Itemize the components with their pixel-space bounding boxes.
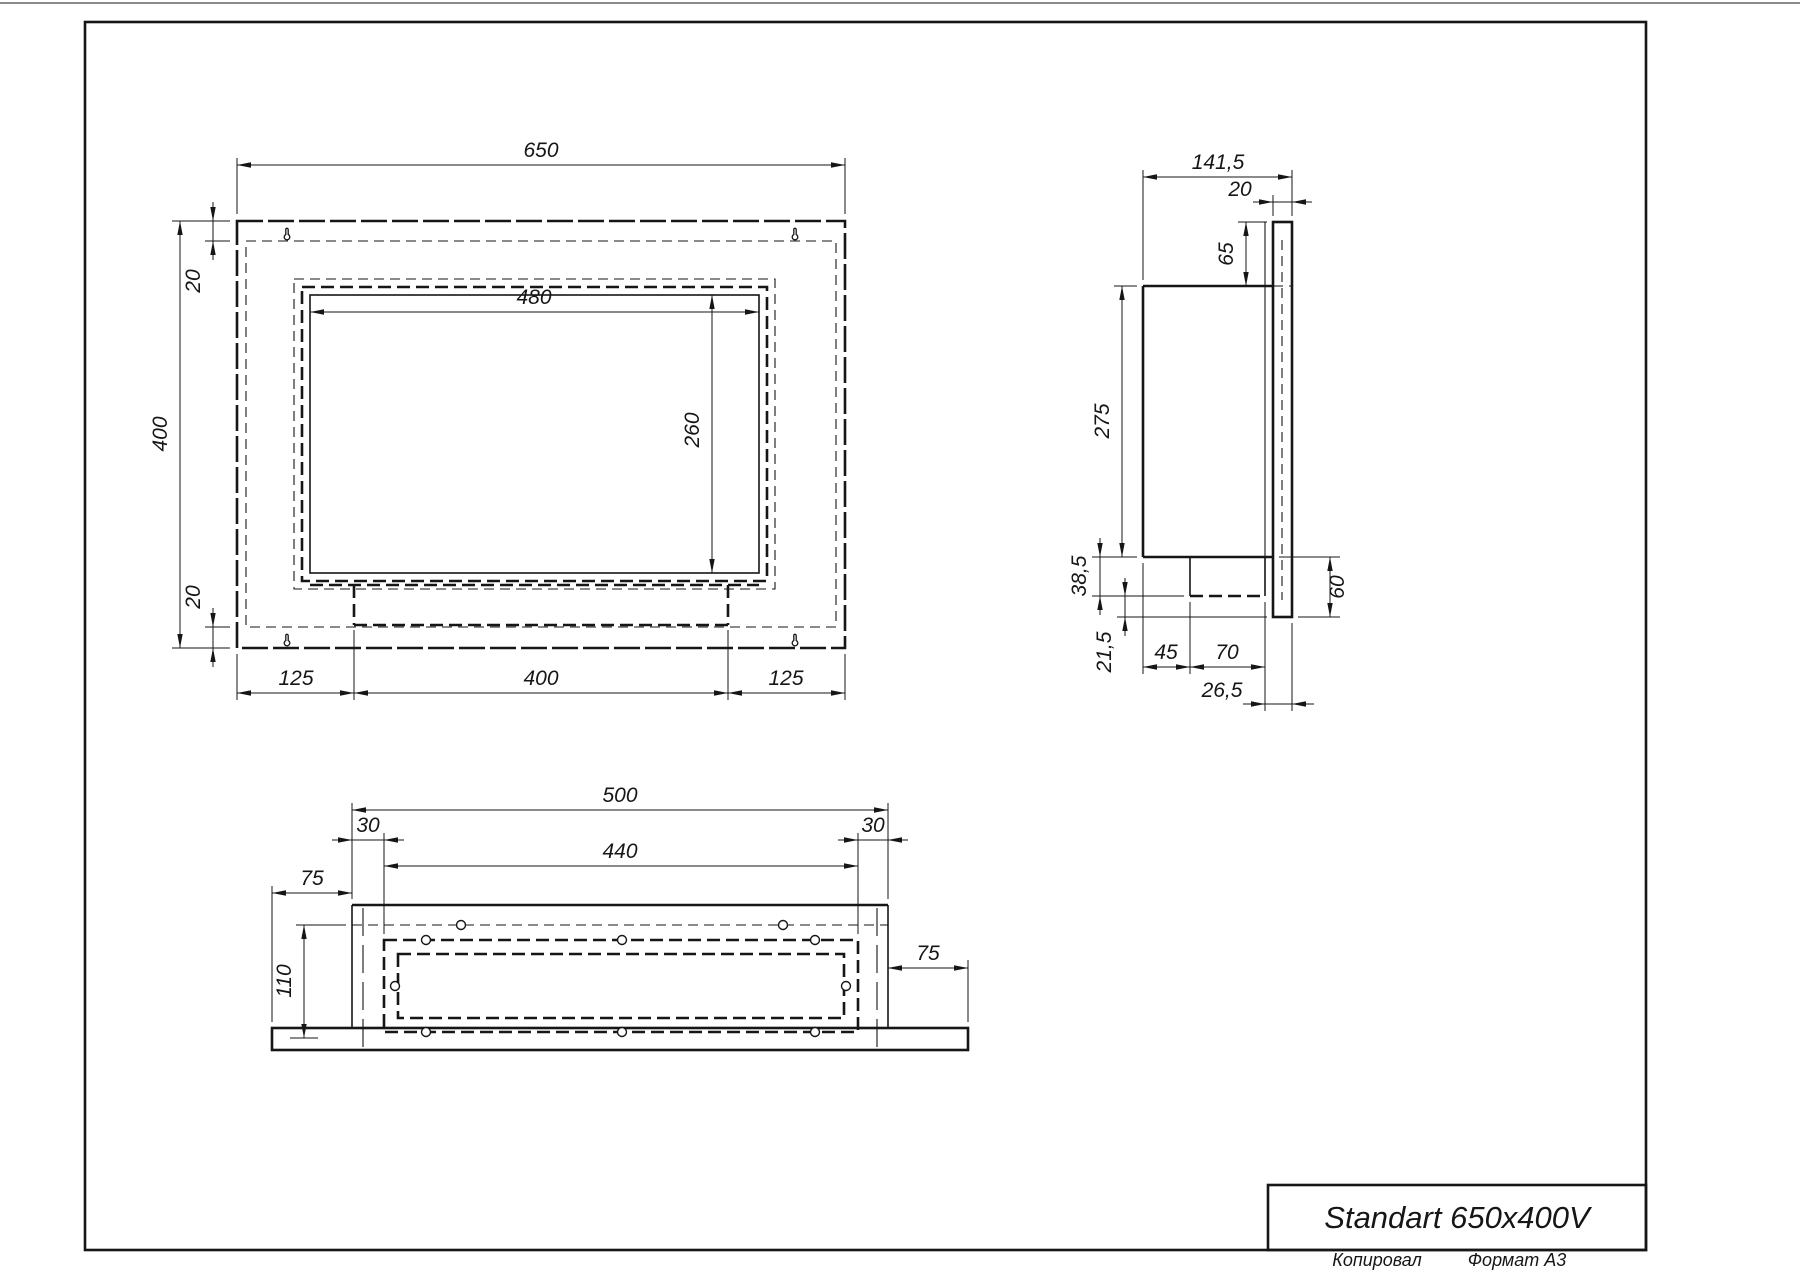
dim-side-body-height: 275 <box>1091 403 1114 439</box>
dim-side-tray-width: 70 <box>1215 641 1239 664</box>
dim-front-bottom-left: 125 <box>278 667 313 690</box>
dim-side-overall-depth: 141,5 <box>1192 151 1245 174</box>
side-view: 141,5 20 65 275 38,5 21,5 45 <box>1068 151 1349 711</box>
dim-front-overall-height: 400 <box>149 416 172 451</box>
footer-format-label: Формат А3 <box>1468 1250 1567 1270</box>
front-view: 650 400 20 20 480 260 125 400 125 <box>149 139 845 700</box>
dim-front-opening-width: 480 <box>516 286 551 309</box>
screw-hole-icon <box>618 936 627 945</box>
dim-side-tray-to-panel-edge: 26,5 <box>1201 679 1243 702</box>
dim-front-top-offset: 20 <box>182 269 205 294</box>
dim-side-panel-above-top: 65 <box>1215 242 1238 266</box>
dim-front-opening-height: 260 <box>681 412 704 448</box>
screw-hole-icon <box>457 921 466 930</box>
dim-front-overall-width: 650 <box>523 139 558 162</box>
drawing-frame <box>85 22 1646 1250</box>
sheet-footer: Копировал Формат А3 <box>1332 1250 1566 1270</box>
drawing-sheet: 650 400 20 20 480 260 125 400 125 <box>0 0 1800 1273</box>
screw-hole-icon <box>779 921 788 930</box>
dim-front-bottom-center: 400 <box>523 667 558 690</box>
dim-side-panel-below-body: 60 <box>1326 575 1349 599</box>
dim-side-tray-depth: 38,5 <box>1068 555 1091 596</box>
dim-front-bottom-right: 125 <box>768 667 803 690</box>
dim-side-tray-offset: 45 <box>1154 641 1178 664</box>
screw-hole-icon <box>422 936 431 945</box>
screw-hole-icon <box>391 982 400 991</box>
dim-side-panel-thickness: 20 <box>1227 178 1252 201</box>
dim-bottom-inset-right: 30 <box>861 814 885 837</box>
dim-front-bottom-offset: 20 <box>182 585 205 610</box>
bottom-burner-frame-inner <box>398 954 844 1018</box>
dim-bottom-flange-left: 75 <box>300 867 324 890</box>
screw-hole-icon <box>422 1028 431 1037</box>
bottom-view: 500 30 30 440 75 75 110 <box>272 784 968 1050</box>
screw-hole-icon <box>811 1028 820 1037</box>
screw-hole-icon <box>811 936 820 945</box>
dim-bottom-burner-frame-width: 440 <box>602 840 637 863</box>
title-block: Standart 650x400V <box>1268 1185 1646 1250</box>
keyhole-icon <box>284 634 290 646</box>
dim-bottom-body-depth: 110 <box>273 964 296 998</box>
dim-bottom-inset-left: 30 <box>356 814 380 837</box>
dim-side-tray-to-panel-bottom: 21,5 <box>1093 631 1116 673</box>
keyhole-icon <box>792 634 798 646</box>
keyhole-icon <box>284 228 290 240</box>
keyhole-icon <box>792 228 798 240</box>
dim-bottom-body-width: 500 <box>602 784 637 807</box>
drawing-canvas: 650 400 20 20 480 260 125 400 125 <box>0 0 1800 1273</box>
dim-bottom-flange-right: 75 <box>916 942 940 965</box>
screw-hole-icon <box>618 1028 627 1037</box>
footer-copied-label: Копировал <box>1332 1250 1422 1270</box>
drawing-title: Standart 650x400V <box>1324 1200 1593 1235</box>
screw-hole-icon <box>842 982 851 991</box>
